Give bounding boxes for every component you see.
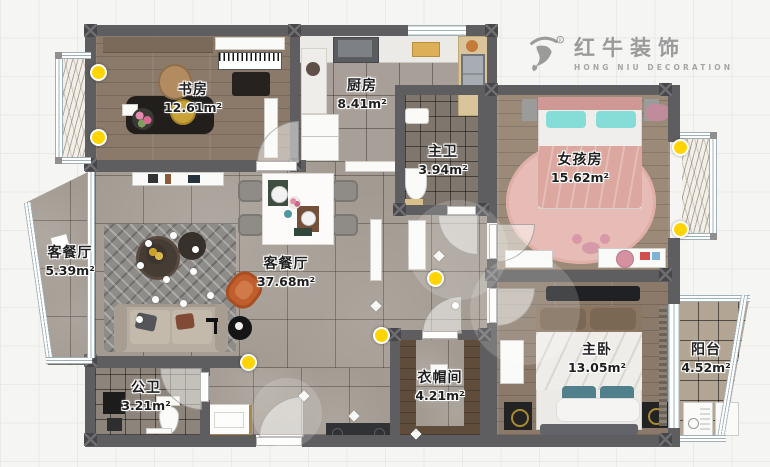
bay-corner-dot: [55, 52, 62, 59]
brand-logo: R 红牛装饰 HONG NIU DECORATION: [524, 32, 733, 74]
room-label-girls-room: 女孩房 15.62m²: [551, 152, 609, 185]
room-name: 主卧: [568, 342, 626, 360]
floor-lamp-pole: [214, 320, 217, 334]
study-bay-frame: [55, 52, 63, 164]
wall-corner: [659, 268, 672, 281]
spot-light-icon: [452, 302, 459, 309]
room-label-living-dining: 客餐厅 37.68m²: [257, 256, 315, 289]
spot-light-icon: [180, 300, 187, 307]
fridge-icon: [301, 114, 339, 161]
shower-stool: [107, 418, 122, 431]
coffee-table-small: [178, 232, 206, 260]
wall-mbath-left: [395, 85, 405, 215]
desk-toy-icon: [652, 252, 660, 260]
room-label-kitchen: 厨房 8.41m²: [337, 78, 386, 111]
spot-light-icon: [136, 316, 143, 323]
spot-light-icon: [137, 262, 144, 269]
cutting-board-icon: [412, 42, 440, 57]
room-label-balcony: 阳台 4.52m²: [681, 342, 730, 375]
brand-text: 红牛装饰 HONG NIU DECORATION: [574, 32, 733, 72]
master-curtain: [659, 306, 667, 426]
sideboard-books: [148, 174, 158, 183]
spot-light-icon: [190, 268, 197, 275]
public-bath-door: [200, 372, 209, 402]
room-name: 公卫: [121, 380, 170, 398]
wall-pubbath-top: [85, 356, 248, 368]
brand-subtitle: HONG NIU DECORATION: [574, 63, 733, 72]
sofa-pillow-rust: [175, 313, 195, 330]
wall-mbath-top: [395, 85, 487, 95]
bed-bench: [540, 424, 638, 435]
teal-pillow: [596, 111, 636, 128]
spot-light-icon: [207, 292, 214, 299]
floor-plan-canvas: 书房 12.61m² 厨房 8.41m² 主卫 3.94m² 女孩房 15.62…: [0, 0, 770, 467]
dining-chair: [332, 180, 358, 202]
fridge-divider: [301, 136, 339, 137]
pig-ear-icon: [572, 234, 582, 244]
dining-chair: [332, 214, 358, 236]
room-area: 37.68m²: [257, 274, 315, 290]
teal-cup-icon: [284, 210, 292, 218]
balcony-frame-bottom: [680, 435, 726, 442]
ceiling-light-icon: [672, 139, 689, 156]
wall-girls-top: [487, 85, 672, 95]
room-label-master-bath: 主卫 3.94m²: [418, 144, 467, 177]
kitchen-pot-icon: [306, 62, 320, 76]
table-plant-icon: [146, 244, 166, 264]
room-name: 女孩房: [551, 152, 609, 170]
room-area: 5.39m²: [45, 263, 94, 279]
bay-corner-dot: [55, 157, 62, 164]
ceiling-light-icon: [427, 270, 444, 287]
wall-corner: [84, 433, 97, 446]
ceiling-light-icon: [90, 64, 107, 81]
girls-pouf: [645, 104, 669, 121]
room-label-master-bedroom: 主卧 13.05m²: [568, 342, 626, 375]
green-pad: [294, 228, 312, 236]
wall-bottom-left: [85, 435, 256, 447]
piano-bench-rug: [232, 72, 270, 96]
cloakroom-door: [422, 331, 458, 339]
wall-corner: [485, 83, 498, 96]
spot-light-icon: [170, 232, 177, 239]
piano-keys: [219, 53, 279, 61]
room-area: 13.05m²: [568, 360, 626, 376]
room-name: 客餐厅: [45, 245, 94, 263]
dining-chair: [238, 180, 264, 202]
girls-nightstand: [522, 99, 537, 121]
brand-name: 红牛装饰: [574, 38, 733, 59]
bull-icon: R: [524, 32, 566, 74]
table-flowers-icon: [288, 196, 301, 209]
wall-corner: [393, 203, 406, 216]
room-area: 15.62m²: [551, 170, 609, 186]
spot-light-icon: [152, 296, 159, 303]
sideboard-books: [165, 174, 171, 184]
wall-corner: [659, 83, 672, 96]
plate-icon: [301, 211, 316, 226]
study-top-cabinet: [215, 37, 285, 50]
room-label-study: 书房 12.61m²: [164, 82, 222, 115]
girls-desk-chair: [616, 250, 634, 268]
wall-study-bottom: [85, 160, 256, 172]
kitchen-column: [301, 48, 327, 114]
room-label-public-bath: 公卫 3.21m²: [121, 380, 170, 413]
wall-corner: [659, 433, 672, 446]
corridor-cabinet: [370, 219, 382, 281]
sideboard: [132, 172, 224, 186]
study-door: [256, 161, 297, 171]
cloakroom-wardrobe-left: [400, 340, 416, 435]
sideboard-books: [188, 175, 200, 183]
ceiling-light-icon: [672, 221, 689, 238]
ceiling-light-icon: [90, 129, 107, 146]
cloakroom-wardrobe-right: [464, 340, 480, 435]
room-area: 8.41m²: [337, 96, 386, 112]
pig-ear-icon: [600, 234, 610, 244]
mbath-sink: [405, 108, 429, 124]
washer-drum: [688, 418, 699, 429]
girls-bay-frame: [709, 132, 717, 240]
vanity-sink-line: [214, 412, 244, 428]
master-balcony-window: [668, 304, 680, 428]
stove-inner: [338, 40, 372, 57]
room-label-cloakroom: 衣帽间 4.21m²: [415, 370, 464, 403]
brown-pillow: [590, 308, 636, 330]
room-name: 衣帽间: [415, 370, 464, 388]
wall-left-upper: [85, 25, 96, 172]
kitchen-bowl-icon: [466, 40, 478, 52]
kitchen-window: [408, 25, 466, 36]
girls-headboard: [538, 97, 642, 110]
wall-master-right-upper: [668, 282, 680, 306]
room-name: 书房: [164, 82, 222, 100]
bay-corner-dot: [710, 132, 717, 139]
room-name: 厨房: [337, 78, 386, 96]
wall-cloak-left: [390, 330, 400, 437]
room-name: 主卫: [418, 144, 467, 162]
teal-pillow: [546, 111, 586, 128]
bay-corner-dot: [710, 233, 717, 240]
room-name: 阳台: [681, 342, 730, 360]
room-label-living-balcony: 客餐厅 5.39m²: [45, 245, 94, 278]
ceiling-light-icon: [373, 327, 390, 344]
wall-corner: [84, 24, 97, 37]
speaker-ring-icon: [511, 409, 529, 427]
spot-light-icon: [163, 276, 170, 283]
flower-vase-icon: [132, 108, 154, 130]
plate-icon: [271, 186, 288, 203]
side-table-items: [235, 322, 243, 330]
ceiling-light-icon: [240, 354, 257, 371]
room-area: 3.21m²: [121, 398, 170, 414]
room-name: 客餐厅: [257, 256, 315, 274]
room-area: 12.61m²: [164, 100, 222, 116]
spot-light-icon: [192, 246, 199, 253]
living-balcony-frame-bottom: [46, 357, 92, 364]
room-area: 4.52m²: [681, 360, 730, 376]
white-pillows: [556, 398, 640, 422]
bath-mat: [146, 428, 172, 434]
registered-mark: R: [559, 38, 563, 44]
room-area: 3.94m²: [418, 162, 467, 178]
dining-chair: [238, 214, 264, 236]
spot-light-icon: [145, 240, 152, 247]
room-area: 4.21m²: [415, 388, 464, 404]
study-closet: [103, 37, 213, 53]
wall-corner: [485, 24, 498, 37]
wall-corner: [288, 24, 301, 37]
desk-toy-icon: [640, 252, 650, 260]
light-glare: [470, 255, 580, 365]
sofa-arm: [114, 304, 127, 352]
washer-lines: [700, 408, 710, 430]
light-glare: [252, 378, 322, 448]
